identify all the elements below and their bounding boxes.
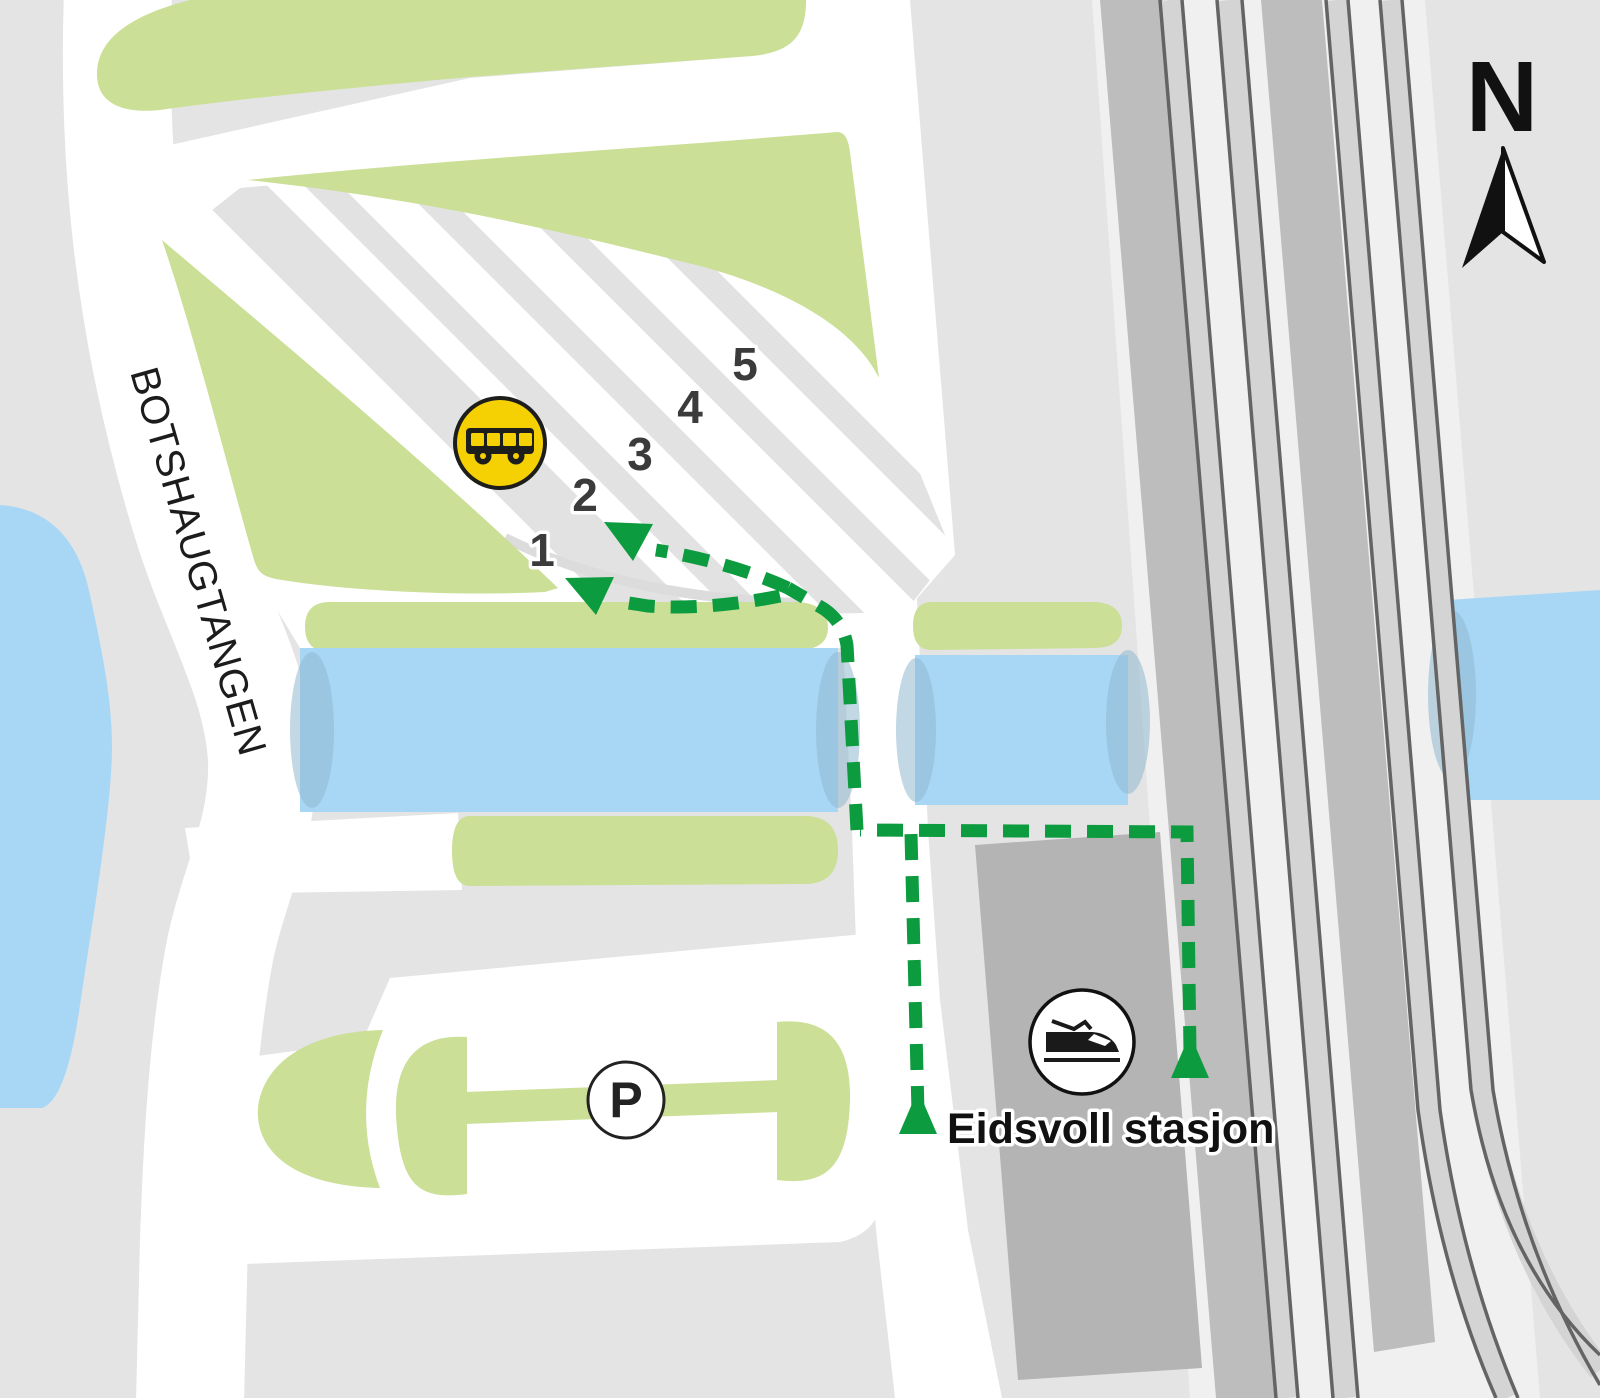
- station-label: Eidsvoll stasjon: [947, 1105, 1274, 1153]
- compass-letter: N: [1466, 41, 1538, 153]
- bay-number-4: 4: [677, 381, 703, 433]
- train-icon: [1030, 990, 1134, 1094]
- bay-number-2: 2: [572, 469, 598, 521]
- parking-letter: P: [609, 1072, 642, 1128]
- bay-number-3: 3: [627, 428, 653, 480]
- bay-number-5: 5: [732, 338, 758, 390]
- bus-icon: [455, 398, 545, 488]
- bay-number-1: 1: [529, 524, 555, 576]
- parking-icon: P: [588, 1062, 664, 1138]
- station-area-map: 1 2 3 4 5 BOTSHAUGTANGEN P Eidsvoll s: [0, 0, 1600, 1398]
